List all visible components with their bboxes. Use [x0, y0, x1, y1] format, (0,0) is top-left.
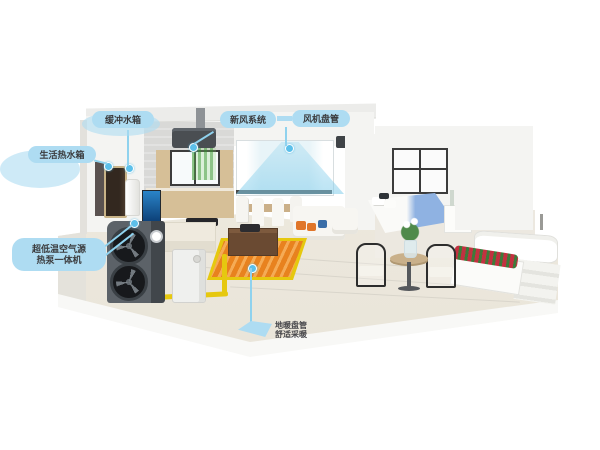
patio-chair-right-cushion	[429, 267, 453, 277]
sofa-cushion-orange-2	[307, 223, 316, 231]
module-badge	[193, 255, 201, 263]
doorway-niche	[95, 162, 104, 216]
callout-fan-coil-text: 风机盘管	[303, 112, 339, 125]
dresser-vase-flowers	[450, 190, 454, 206]
patio-table-pedestal	[407, 262, 411, 288]
bathtub-faucet	[540, 214, 543, 230]
heat-pump-fan-bottom	[110, 263, 148, 301]
callout-buffer-tank: 缓冲水箱	[92, 111, 154, 128]
callout-buffer-tank-text: 缓冲水箱	[105, 113, 141, 126]
dining-chair	[252, 198, 264, 226]
patio-chair-left-cushion	[359, 266, 383, 276]
flower-vase	[404, 240, 417, 258]
callout-floor-heating-line1: 地暖盘管	[275, 321, 307, 330]
sofa-cushion-blue	[318, 220, 327, 228]
callout-connector-dash	[277, 116, 292, 121]
water-pipe-vertical	[222, 254, 227, 296]
callout-fresh-air: 新风系统	[220, 111, 276, 128]
callout-heat-pump: 超低温空气源 热泵一体机	[12, 238, 106, 271]
coffee-table-tea-set	[240, 224, 260, 232]
leader-line-floor-heating	[250, 268, 252, 322]
callout-heat-pump-line2: 热泵一体机	[36, 255, 81, 266]
bedroom-window-mullion-h	[393, 168, 447, 170]
heat-pump-home-cutaway-scene: 缓冲水箱 生活热水箱 新风系统 风机盘管 超低温空气源 热泵一体机 地暖盘管 舒…	[0, 0, 600, 450]
buffer-tank-cylinder	[125, 179, 140, 216]
callout-floor-heating: 地暖盘管 舒适采暖	[275, 321, 307, 339]
sofa-cushion-orange	[296, 221, 306, 230]
kitchen-upper-cabinet-left	[156, 150, 170, 190]
patio-chair-right	[426, 244, 456, 288]
bedroom-window-mullion-v	[419, 149, 421, 192]
callout-fresh-air-text: 新风系统	[230, 113, 266, 126]
leader-line-fan-coil	[285, 127, 287, 146]
fresh-air-flow	[192, 148, 216, 180]
dining-chair	[236, 196, 248, 222]
aquarium-screen	[142, 190, 161, 225]
callout-heat-pump-line1: 超低温空气源	[32, 244, 86, 255]
bathroom-wall	[455, 152, 533, 230]
callout-hot-water-tank-text: 生活热水箱	[39, 148, 84, 161]
patio-chair-left	[356, 243, 386, 287]
coffee-table	[228, 228, 278, 256]
pillow-white-2	[384, 200, 396, 208]
dining-chair	[272, 198, 284, 226]
kitchen-upper-cabinet-right	[220, 150, 233, 192]
heat-pump-outdoor-unit	[107, 221, 165, 303]
patio-table-base	[398, 286, 420, 291]
callout-floor-heating-line2: 舒适采暖	[275, 330, 307, 339]
pillow-dark	[379, 193, 389, 199]
hot-water-tank-cabinet	[104, 166, 127, 218]
sofa-corner	[332, 208, 358, 234]
callout-fan-coil: 风机盘管	[292, 110, 350, 127]
heat-pump-brand-badge	[150, 230, 163, 243]
left-wall-edge	[80, 120, 87, 234]
callout-hot-water-tank: 生活热水箱	[28, 146, 96, 163]
